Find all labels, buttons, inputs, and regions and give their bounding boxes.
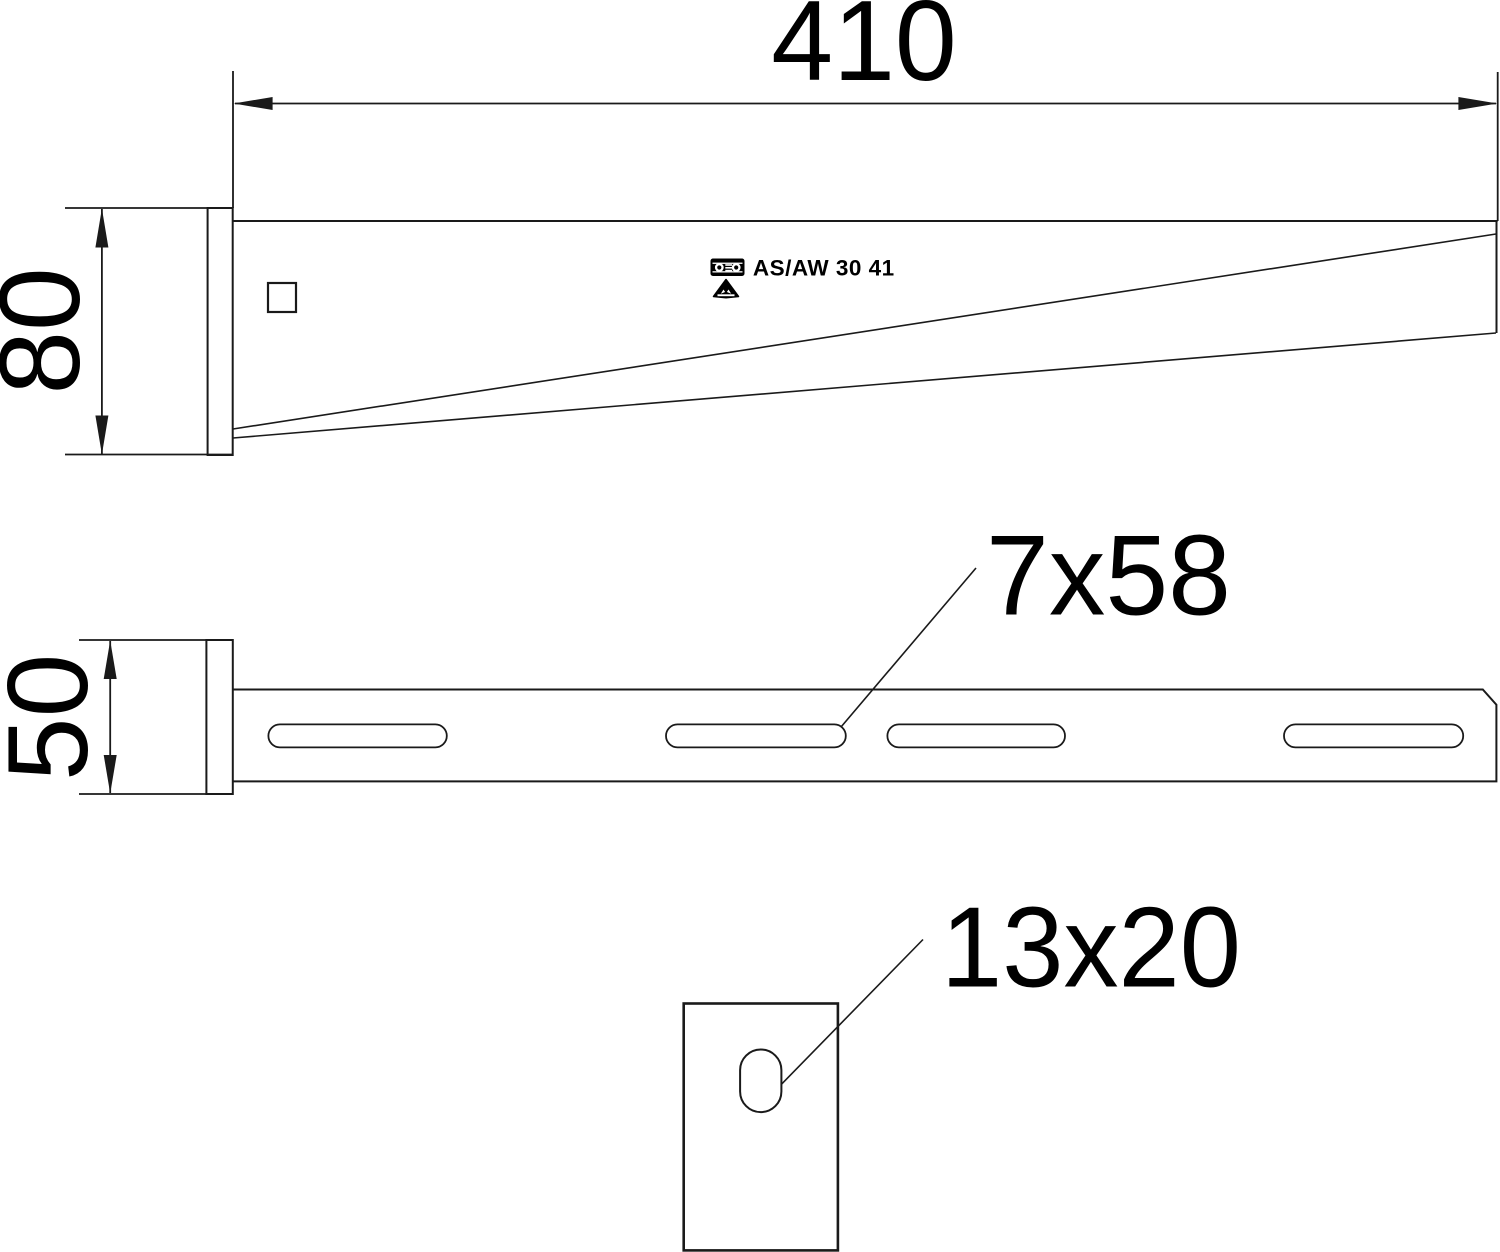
svg-text:AS/AW 30 41: AS/AW 30 41 bbox=[753, 256, 895, 281]
svg-text:7x58: 7x58 bbox=[986, 512, 1231, 640]
svg-text:50: 50 bbox=[0, 654, 112, 781]
svg-text:80: 80 bbox=[0, 267, 104, 394]
svg-text:410: 410 bbox=[771, 0, 957, 105]
svg-text:13x20: 13x20 bbox=[941, 883, 1241, 1011]
